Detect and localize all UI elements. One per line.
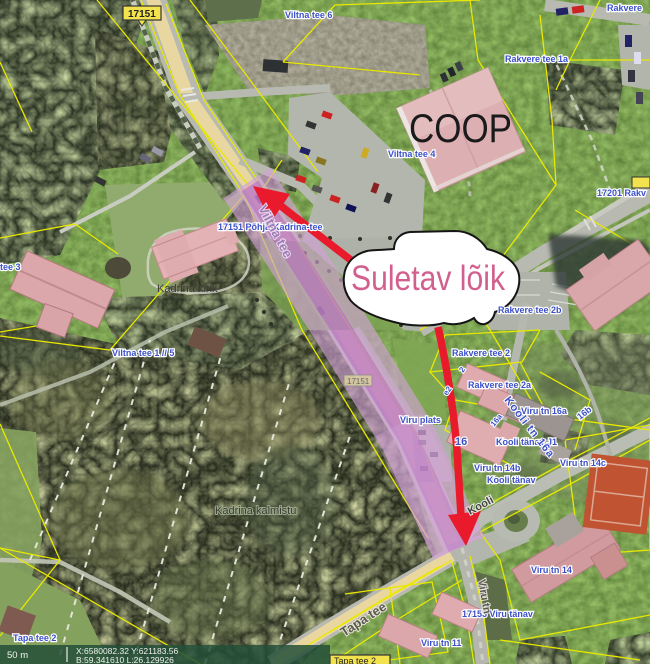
svg-text:Tapa tee 2: Tapa tee 2 xyxy=(334,656,376,664)
svg-text:Rakvere tee 2b: Rakvere tee 2b xyxy=(498,305,562,315)
svg-text:Rakvere tee 2a: Rakvere tee 2a xyxy=(468,380,532,390)
svg-text:17153 Viru tänav: 17153 Viru tänav xyxy=(462,609,533,619)
svg-text:16: 16 xyxy=(455,436,467,448)
svg-text:50 m: 50 m xyxy=(7,650,28,661)
svg-text:Kooli tänav: Kooli tänav xyxy=(487,475,536,485)
svg-text:17151: 17151 xyxy=(347,377,370,386)
svg-text:Viru tn 16a: Viru tn 16a xyxy=(521,406,568,416)
svg-text:Viru tn 14: Viru tn 14 xyxy=(531,565,572,575)
svg-text:tee 3: tee 3 xyxy=(0,262,21,272)
svg-text:Viru tn 11: Viru tn 11 xyxy=(421,638,461,648)
svg-text:17151: 17151 xyxy=(128,9,156,20)
svg-text:Viltna tee 1 // 5: Viltna tee 1 // 5 xyxy=(112,348,174,358)
svg-text:Kadrina kirik: Kadrina kirik xyxy=(157,283,218,295)
svg-text:Viltna tee 4: Viltna tee 4 xyxy=(388,149,435,159)
svg-text:17201 Rakv: 17201 Rakv xyxy=(597,188,646,198)
svg-text:Kadrina kalmistu: Kadrina kalmistu xyxy=(215,505,296,517)
svg-text:Viltna tee 6: Viltna tee 6 xyxy=(285,10,332,20)
svg-text:B:59.341610 L:26.129926: B:59.341610 L:26.129926 xyxy=(76,655,174,664)
svg-text:Viru plats: Viru plats xyxy=(400,415,441,425)
svg-text:COOP: COOP xyxy=(409,107,512,151)
svg-text:Rakvere tee 2: Rakvere tee 2 xyxy=(452,348,510,358)
svg-text:Viru tn 14c: Viru tn 14c xyxy=(560,458,606,468)
svg-text:Tapa tee 2: Tapa tee 2 xyxy=(13,633,56,643)
svg-text:Rakvere tee 1a: Rakvere tee 1a xyxy=(505,54,569,64)
svg-text:Rakvere: Rakvere xyxy=(607,3,642,13)
svg-text:Suletav lõik: Suletav lõik xyxy=(351,259,505,298)
svg-text:Viru tn 14b: Viru tn 14b xyxy=(474,463,521,473)
